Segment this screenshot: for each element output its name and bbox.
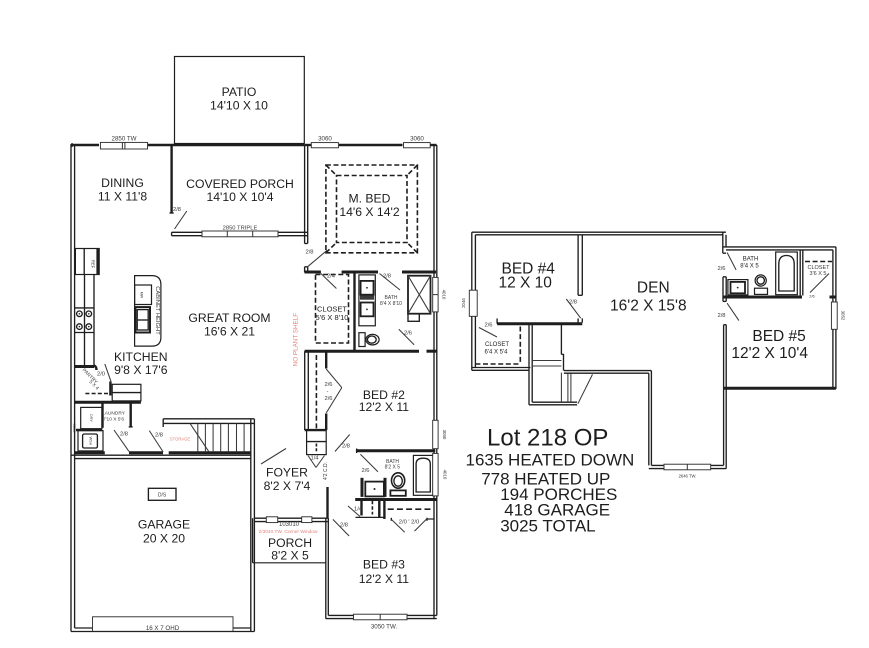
svg-text:2850 TRIPLE: 2850 TRIPLE (223, 226, 258, 232)
svg-text:BED #3: BED #3 (363, 558, 405, 572)
svg-text:D/S: D/S (158, 493, 167, 499)
svg-text:CLOSET: CLOSET (485, 342, 509, 348)
svg-text:12'2 X 11: 12'2 X 11 (359, 400, 409, 414)
svg-text:7'10 X 5'6: 7'10 X 5'6 (103, 417, 124, 423)
svg-text:REF: REF (91, 260, 96, 269)
svg-text:GARAGE: GARAGE (138, 518, 190, 532)
svg-text:2/8: 2/8 (120, 432, 128, 438)
svg-text:2/6: 2/6 (484, 322, 492, 328)
svg-text:2046: 2046 (461, 298, 466, 308)
svg-text:Lot 218 OP: Lot 218 OP (487, 425, 608, 452)
svg-text:16'6 X 21: 16'6 X 21 (204, 325, 255, 339)
svg-text:3050 TW.: 3050 TW. (371, 624, 398, 631)
svg-text:WSH: WSH (89, 437, 93, 446)
svg-text:LAUNDRY: LAUNDRY (102, 411, 126, 417)
svg-text:PATIO: PATIO (222, 85, 257, 99)
svg-text:DRY: DRY (89, 414, 93, 422)
svg-text:2/6: 2/6 (809, 294, 815, 299)
svg-text:12'2 X 10'4: 12'2 X 10'4 (731, 345, 808, 362)
svg-text:9'8 X 17'6: 9'8 X 17'6 (114, 363, 168, 377)
svg-text:3060: 3060 (318, 136, 332, 143)
svg-text:2/8: 2/8 (305, 250, 313, 256)
svg-text:2/6: 2/6 (361, 468, 369, 474)
svg-text:8'2 X 7'4: 8'2 X 7'4 (264, 479, 311, 493)
svg-text:2/0: 2/0 (97, 372, 105, 378)
svg-text:BED #5: BED #5 (752, 328, 805, 345)
svg-text:2/0 ' 2/0: 2/0 ' 2/0 (399, 519, 419, 525)
svg-text:2/8: 2/8 (569, 300, 577, 306)
svg-text:GREAT ROOM: GREAT ROOM (188, 311, 270, 325)
svg-text:1/4: 1/4 (354, 507, 363, 513)
svg-text:STORAGE: STORAGE (170, 437, 191, 442)
svg-text:M. BED: M. BED (349, 192, 391, 206)
svg-text:2/8: 2/8 (173, 207, 181, 213)
svg-text:20 X 20: 20 X 20 (143, 532, 185, 546)
svg-text:4'2 C.D.: 4'2 C.D. (323, 462, 329, 480)
svg-text:14'10 X 10: 14'10 X 10 (210, 99, 268, 113)
svg-text:2/8: 2/8 (342, 444, 350, 450)
svg-text:-: - (327, 389, 329, 395)
svg-text:2/8: 2/8 (340, 523, 348, 529)
svg-text:16'2 X 15'8: 16'2 X 15'8 (610, 298, 687, 315)
svg-text:14'6 X 14'2: 14'6 X 14'2 (339, 205, 399, 219)
svg-text:11 X 11'8: 11 X 11'8 (98, 190, 148, 204)
svg-text:COVERED PORCH: COVERED PORCH (186, 177, 294, 191)
svg-text:3052: 3052 (840, 311, 845, 321)
svg-text:DEN: DEN (637, 279, 670, 296)
svg-text:2850 TW: 2850 TW (112, 135, 137, 142)
svg-text:2/8: 2/8 (383, 274, 391, 280)
svg-text:14'10 X 10'4: 14'10 X 10'4 (206, 190, 273, 204)
svg-text:2/8: 2/8 (717, 313, 725, 319)
svg-text:MW: MW (140, 292, 144, 299)
svg-text:BATH: BATH (743, 257, 759, 263)
svg-text:3060: 3060 (410, 136, 424, 143)
svg-text:8'2 X 5: 8'2 X 5 (271, 549, 309, 563)
svg-text:5'6 X 8'10: 5'6 X 8'10 (316, 313, 349, 322)
svg-text:8'2 X 5: 8'2 X 5 (385, 465, 401, 471)
svg-text:4010: 4010 (441, 290, 446, 300)
svg-text:6'4 X 5'4: 6'4 X 5'4 (485, 350, 509, 356)
svg-text:3'6 X 5: 3'6 X 5 (810, 271, 827, 277)
svg-text:KITCHEN: KITCHEN (114, 350, 168, 364)
svg-text:12'2 X 11: 12'2 X 11 (359, 572, 409, 586)
svg-text:8'4 X 5: 8'4 X 5 (740, 263, 759, 269)
svg-text:2/8: 2/8 (155, 433, 163, 439)
svg-text:103010: 103010 (279, 522, 300, 528)
svg-text:2646 TW.: 2646 TW. (679, 474, 697, 479)
svg-text:8'4 X 8'10: 8'4 X 8'10 (380, 301, 402, 307)
svg-text:2/6: 2/6 (404, 331, 412, 337)
svg-text:CLOSET: CLOSET (807, 265, 830, 271)
svg-text:16 X 7 OHD: 16 X 7 OHD (146, 625, 180, 632)
svg-text:2/6: 2/6 (717, 266, 725, 272)
svg-text:3025 TOTAL: 3025 TOTAL (500, 516, 595, 535)
svg-text:CABINET HEIGHT: CABINET HEIGHT (154, 286, 160, 335)
svg-text:2/3040 TW. Corner Window: 2/3040 TW. Corner Window (259, 529, 318, 535)
svg-text:NO PLANT SHELF: NO PLANT SHELF (292, 313, 299, 367)
svg-text:12 X 10: 12 X 10 (498, 275, 552, 292)
svg-text:2/6: 2/6 (324, 382, 332, 388)
svg-text:1635 HEATED DOWN: 1635 HEATED DOWN (466, 450, 635, 469)
svg-text:2/6: 2/6 (324, 396, 332, 402)
svg-text:2020: 2020 (72, 423, 77, 433)
svg-text:3050: 3050 (442, 430, 447, 440)
svg-text:4010: 4010 (442, 470, 447, 480)
svg-text:FOYER: FOYER (266, 466, 308, 480)
svg-text:DINING: DINING (101, 176, 144, 190)
